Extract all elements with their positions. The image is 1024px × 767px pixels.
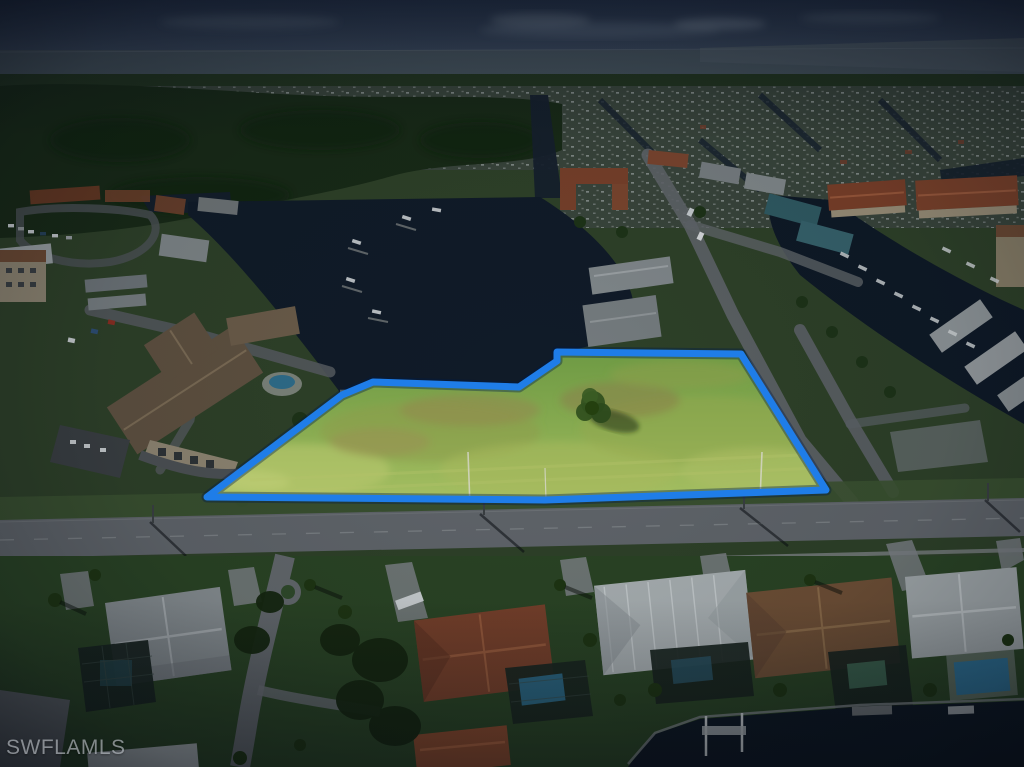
mls-watermark: SWFLAMLS xyxy=(6,736,126,760)
aerial-photo: SWFLAMLS xyxy=(0,0,1024,767)
aerial-photo-canvas xyxy=(0,0,1024,767)
